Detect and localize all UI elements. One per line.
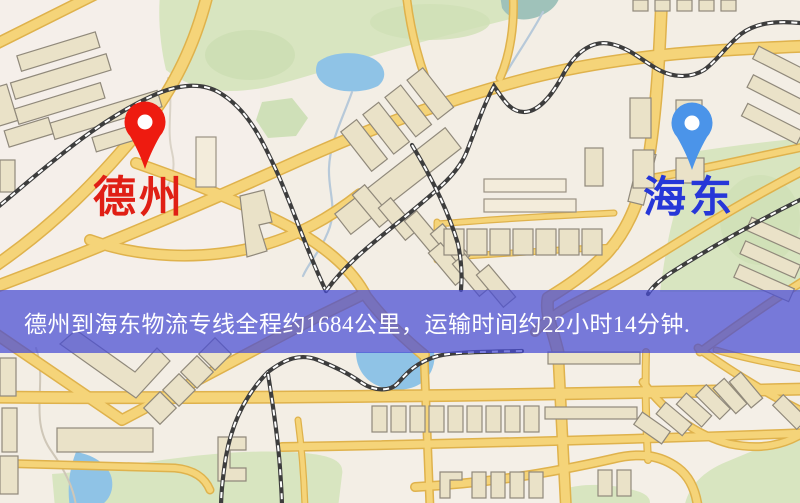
map-canvas: [0, 0, 800, 503]
route-info-banner: 德州到海东物流专线全程约1684公里，运输时间约22小时14分钟.: [0, 290, 800, 353]
origin-pin[interactable]: [120, 97, 170, 169]
destination-label: 海东: [643, 177, 735, 220]
origin-pin-hole: [138, 115, 153, 130]
destination-pin[interactable]: [667, 98, 717, 170]
logistics-route-map: 德州 海东 德州到海东物流专线全程约1684公里，运输时间约22小时14分钟.: [0, 0, 800, 503]
origin-label: 德州: [93, 177, 185, 220]
route-info-text: 德州到海东物流专线全程约1684公里，运输时间约22小时14分钟.: [0, 305, 690, 339]
destination-pin-hole: [685, 116, 700, 131]
